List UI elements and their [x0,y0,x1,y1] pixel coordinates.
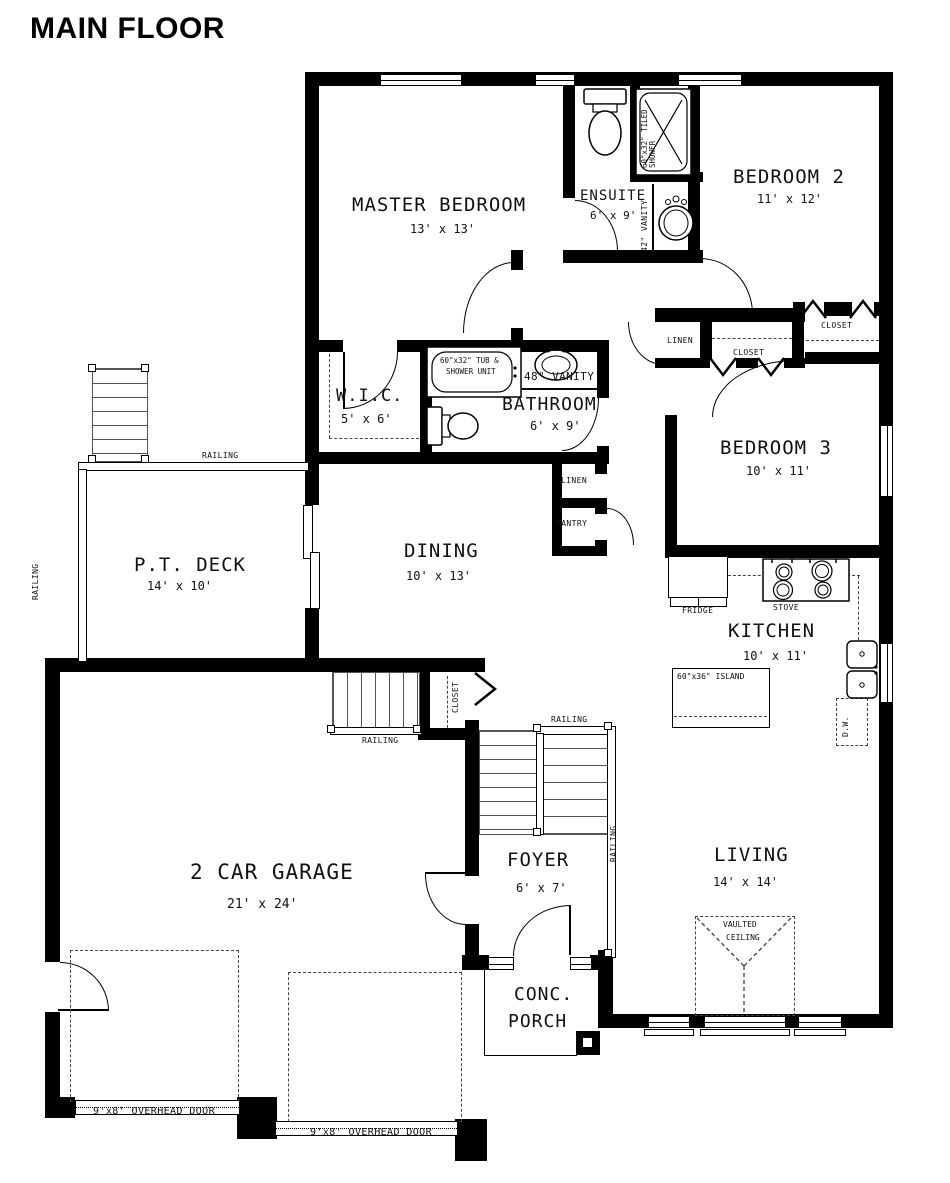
room-label-porch-line2: PORCH [508,1011,567,1032]
closet-rod [712,338,792,339]
room-dims-dining: 10' x 13' [406,569,471,583]
floor-plan: MAIN FLOOR [0,0,950,1183]
stove-icon [762,558,850,602]
window [678,74,742,86]
closet-label: CLOSET [451,682,460,713]
wall [824,302,852,316]
toilet-icon [582,88,628,160]
vanity-counter [652,184,654,250]
room-label-deck: P.T. DECK [134,554,246,576]
tub-label-line2: SHOWER UNIT [446,367,496,376]
room-dims-wic: 5' x 6' [341,412,392,426]
wall [552,546,602,556]
vanity-42-label: 42" VANITY [640,200,649,252]
wall [465,924,479,958]
room-label-porch-line1: CONC. [514,984,573,1005]
window [704,1016,786,1028]
toilet-icon [426,402,480,450]
room-dims-living: 14' x 14' [713,875,778,889]
room-dims-bathroom: 6' x 9' [530,419,581,433]
bifold-door-icon [709,357,737,377]
room-label-ensuite: ENSUITE [580,188,646,204]
railing-post [327,725,335,733]
door-arc-pantry [607,508,634,545]
closet-rod [447,676,448,728]
door-arc-front-door [513,905,571,956]
room-dims-bedroom3: 10' x 11' [746,464,811,478]
room-dims-foyer: 6' x 7' [516,881,567,895]
vanity-counter [522,388,600,390]
wall [45,672,60,962]
window [535,74,575,86]
window-sill [644,1029,694,1036]
counter-line [858,576,859,640]
window [798,1016,842,1028]
window-sill [700,1029,790,1036]
parking-stall [288,972,462,1122]
wall [455,1119,487,1161]
window-sill [794,1029,846,1036]
vaulted-label-line2: CEILING [726,933,760,942]
sink-icon [655,194,697,246]
patio-door-panel [310,552,320,609]
door-arc-bedroom2 [700,258,753,314]
closet-label: CLOSET [733,348,764,357]
window [880,425,893,497]
wall [595,464,607,474]
wall [237,1097,277,1139]
tub-label-line1: 60"x32" TUB & [440,356,499,365]
wall [563,86,575,198]
vaulted-ceiling-lines [695,916,793,1014]
pantry-label: PANTRY [556,519,587,528]
bifold-door-icon [849,299,877,319]
vanity-48-label: 48" VANITY [524,370,594,383]
door-arc-linen [628,322,663,365]
room-label-wic: W.I.C. [336,386,403,406]
wall [305,86,319,505]
closet-rod [329,438,419,439]
wall [792,312,804,360]
railing-post [604,722,612,730]
wall [418,728,478,740]
window [488,957,514,970]
wall [552,498,602,508]
room-label-master: MASTER BEDROOM [352,194,526,216]
vaulted-label-line1: VAULTED [723,920,757,929]
railing-label: RAILING [31,563,40,600]
railing-label: RAILING [362,736,399,745]
fridge-label: FRIDGE [682,606,713,615]
wall [597,352,609,398]
window [570,957,592,970]
closet-rod [806,340,879,341]
door-arc-master [463,262,514,333]
room-label-bedroom2: BEDROOM 2 [733,166,845,188]
closet-label: CLOSET [821,321,852,330]
island-line [674,716,767,717]
wall [319,340,343,352]
porch-post-center [583,1038,592,1047]
railing-label: RAILING [609,825,618,862]
wall [700,312,712,360]
window [648,1016,690,1028]
patio-door-panel [303,505,313,559]
room-label-garage: 2 CAR GARAGE [190,860,354,884]
deck-stairs [92,368,148,462]
wall [598,950,613,1028]
closet-rod [329,354,330,438]
room-dims-bedroom2: 11' x 12' [757,192,822,206]
fridge-outline [668,556,728,598]
door-arc-garage-entry [425,874,466,925]
window [880,643,893,703]
wall [45,1012,60,1105]
bifold-door-icon [799,299,827,319]
railing-post [533,828,541,836]
island-label: 60"x36" ISLAND [677,672,744,681]
room-dims-kitchen: 10' x 11' [743,649,808,663]
page-title: MAIN FLOOR [30,12,225,46]
deck-railing-left [78,469,87,662]
room-label-foyer: FOYER [507,849,569,871]
room-label-dining: DINING [404,540,479,562]
wall [655,358,710,368]
room-dims-ensuite: 6' x 9' [590,209,636,222]
wall [45,658,485,672]
room-dims-master: 13' x 13' [410,222,475,236]
room-label-bathroom: BATHROOM [502,394,597,415]
wall [563,250,703,263]
foyer-stairs [542,730,610,835]
door-leaf [569,905,571,955]
linen-label: LINEN [667,336,693,345]
kitchen-sink-icon [846,640,880,700]
foyer-stairs [479,730,538,835]
room-label-bedroom3: BEDROOM 3 [720,437,832,459]
wall [805,352,880,364]
room-label-living: LIVING [714,844,789,866]
door-leaf [425,872,465,874]
room-dims-deck: 14' x 10' [147,579,212,593]
railing-post [604,949,612,957]
wall [665,415,677,557]
railing-post [413,725,421,733]
wall [305,452,609,464]
stove-label: STOVE [773,603,799,612]
overhead-door-label: 9'x8' OVERHEAD DOOR [93,1106,215,1117]
room-label-kitchen: KITCHEN [728,620,815,642]
railing-post [141,364,149,372]
railing-label: RAILING [202,451,239,460]
railing-label: RAILING [551,715,588,724]
shower-label: 60"x32" TILED SHOWER [641,109,657,168]
basement-stairs [332,672,420,729]
stair-railing [536,733,544,835]
railing-post [533,724,541,732]
railing-post [88,364,96,372]
stair-railing [536,726,610,735]
bifold-door-icon [474,672,498,708]
stair-railing [330,727,422,735]
deck-railing-top [78,462,309,471]
wall [465,720,479,876]
wall [462,955,489,970]
room-dims-garage: 21' x 24' [227,897,297,912]
overhead-door-label: 9'x8' OVERHEAD DOOR [310,1127,432,1138]
window [380,74,462,86]
parking-stall [70,950,239,1102]
dishwasher-label: D.W. [841,716,850,737]
shower-label-line2: SHOWER [648,141,657,168]
door-arc-ensuite [575,200,618,251]
bifold-door-icon [757,357,785,377]
linen-label: LINEN [561,476,587,485]
